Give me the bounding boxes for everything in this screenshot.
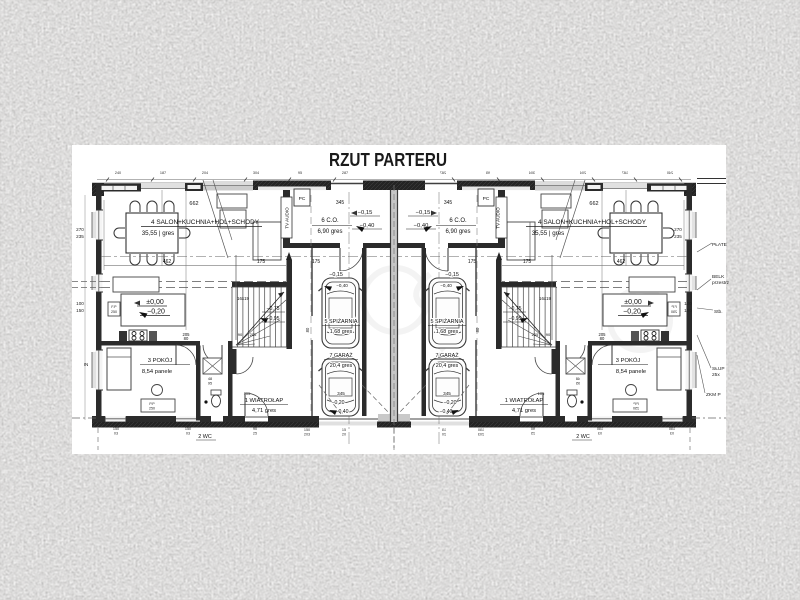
svg-text:−0,40: −0,40: [335, 409, 348, 415]
svg-text:205: 205: [532, 332, 539, 337]
svg-text:250: 250: [671, 310, 677, 314]
svg-text:−0,15: −0,15: [416, 210, 431, 216]
svg-text:03: 03: [114, 432, 118, 436]
svg-text:BELK: BELK: [712, 274, 725, 280]
svg-text:03: 03: [670, 432, 674, 436]
svg-text:16x19: 16x19: [237, 296, 250, 301]
svg-text:1,68 gres: 1,68 gres: [330, 329, 353, 335]
svg-text:IN: IN: [84, 362, 89, 367]
svg-text:35,55 | gres: 35,55 | gres: [532, 230, 565, 237]
svg-text:−0,40: −0,40: [336, 283, 348, 288]
svg-text:235: 235: [674, 234, 682, 239]
svg-text:462: 462: [163, 259, 172, 265]
svg-text:204: 204: [580, 171, 586, 175]
svg-text:100: 100: [684, 301, 692, 306]
svg-text:80: 80: [475, 327, 480, 332]
svg-text:175: 175: [523, 259, 532, 265]
svg-text:150: 150: [304, 428, 310, 432]
svg-text:−0,95: −0,95: [508, 316, 521, 322]
svg-text:P.P: P.P: [633, 402, 639, 406]
svg-text:25x: 25x: [712, 372, 720, 378]
svg-text:150: 150: [684, 308, 692, 313]
svg-text:7 GARAŻ: 7 GARAŻ: [435, 352, 459, 359]
svg-text:345: 345: [443, 391, 451, 396]
svg-text:4 SALON+KUCHNIA+HOL+SCHODY: 4 SALON+KUCHNIA+HOL+SCHODY: [151, 219, 259, 226]
svg-text:7 GARAŻ: 7 GARAŻ: [329, 352, 353, 359]
svg-text:205: 205: [250, 332, 257, 337]
svg-text:175: 175: [312, 259, 321, 265]
svg-text:235: 235: [76, 234, 84, 239]
svg-text:80: 80: [305, 327, 310, 332]
svg-text:03: 03: [598, 432, 602, 436]
svg-text:35,55 | gres: 35,55 | gres: [142, 230, 175, 237]
svg-text:95: 95: [576, 382, 580, 386]
svg-text:287: 287: [342, 171, 348, 175]
svg-text:662: 662: [589, 201, 598, 207]
svg-text:250: 250: [149, 407, 155, 411]
svg-text:8,54 panele: 8,54 panele: [142, 369, 172, 375]
svg-text:25: 25: [253, 432, 257, 436]
svg-text:6 C.O.: 6 C.O.: [449, 218, 467, 224]
svg-text:345: 345: [336, 200, 345, 206]
svg-text:150: 150: [185, 427, 191, 431]
svg-text:304: 304: [529, 171, 535, 175]
svg-text:2 WC: 2 WC: [576, 434, 590, 440]
svg-text:90: 90: [531, 427, 535, 431]
svg-text:462: 462: [617, 259, 626, 265]
svg-text:5 SPIŻARNIA: 5 SPIŻARNIA: [431, 318, 464, 325]
svg-text:240: 240: [667, 171, 673, 175]
svg-text:304: 304: [253, 171, 259, 175]
svg-text:203: 203: [304, 433, 310, 437]
svg-text:−0,75: −0,75: [266, 306, 279, 312]
svg-text:187: 187: [622, 171, 628, 175]
svg-text:6,90 gres: 6,90 gres: [317, 229, 342, 235]
svg-text:204: 204: [202, 171, 208, 175]
svg-text:270: 270: [674, 227, 682, 232]
svg-text:PŁATE: PŁATE: [712, 242, 727, 248]
svg-text:175: 175: [257, 259, 266, 265]
svg-text:−0,20: −0,20: [623, 309, 641, 316]
svg-text:20,4 gres: 20,4 gres: [436, 363, 459, 369]
svg-text:−0,40: −0,40: [439, 409, 452, 415]
svg-text:95: 95: [298, 171, 302, 175]
svg-text:PC: PC: [299, 196, 306, 202]
svg-text:4,71 gres: 4,71 gres: [512, 408, 536, 414]
svg-text:150: 150: [113, 427, 119, 431]
svg-text:±0,00: ±0,00: [146, 299, 164, 306]
svg-text:20: 20: [342, 433, 346, 437]
svg-text:Stb.: Stb.: [714, 309, 723, 315]
svg-text:150: 150: [478, 428, 484, 432]
svg-text:48: 48: [576, 377, 580, 381]
svg-text:P.P: P.P: [149, 402, 155, 406]
svg-text:20: 20: [442, 433, 446, 437]
svg-text:205: 205: [183, 332, 191, 337]
svg-text:03: 03: [186, 432, 190, 436]
svg-text:150: 150: [597, 427, 603, 431]
svg-text:2 WC: 2 WC: [198, 434, 212, 440]
svg-text:3 POKÓJ: 3 POKÓJ: [148, 357, 173, 364]
svg-text:90: 90: [238, 332, 243, 337]
svg-text:150: 150: [76, 308, 84, 313]
svg-text:6 C.O.: 6 C.O.: [321, 218, 339, 224]
svg-text:16x19: 16x19: [539, 296, 552, 301]
svg-text:15: 15: [442, 428, 446, 432]
svg-text:250: 250: [111, 310, 117, 314]
svg-text:przestrz: przestrz: [712, 280, 730, 286]
svg-text:205: 205: [599, 332, 607, 337]
svg-text:662: 662: [189, 201, 198, 207]
svg-text:345: 345: [444, 200, 453, 206]
svg-text:SŁUP: SŁUP: [712, 366, 725, 372]
svg-text:TV AUDIO: TV AUDIO: [285, 207, 290, 229]
svg-text:20,4 gres: 20,4 gres: [330, 363, 353, 369]
svg-text:F.P: F.P: [111, 305, 117, 309]
svg-text:4,71 gres: 4,71 gres: [252, 408, 276, 414]
svg-text:−0,95: −0,95: [266, 316, 279, 322]
svg-text:95: 95: [208, 382, 212, 386]
svg-text:15: 15: [342, 428, 346, 432]
svg-text:25: 25: [531, 432, 535, 436]
svg-text:4 SALON+KUCHNIA+HOL+SCHODY: 4 SALON+KUCHNIA+HOL+SCHODY: [538, 219, 646, 226]
svg-text:1,68 gres: 1,68 gres: [436, 329, 459, 335]
svg-text:100: 100: [76, 301, 84, 306]
svg-text:48: 48: [208, 377, 212, 381]
svg-text:203: 203: [478, 433, 484, 437]
svg-text:240: 240: [115, 171, 121, 175]
svg-text:3 POKÓJ: 3 POKÓJ: [616, 357, 641, 364]
svg-text:RZUT PARTERU: RZUT PARTERU: [329, 150, 447, 170]
svg-text:−0,20: −0,20: [147, 309, 165, 316]
svg-text:5 SPIŻARNIA: 5 SPIŻARNIA: [325, 318, 358, 325]
svg-text:−0,20: −0,20: [331, 400, 344, 406]
svg-text:90: 90: [546, 332, 551, 337]
svg-text:PC: PC: [483, 196, 490, 202]
svg-text:250: 250: [633, 407, 639, 411]
svg-text:90: 90: [253, 427, 257, 431]
svg-text:8,54 panele: 8,54 panele: [616, 369, 646, 375]
svg-text:−0,20: −0,20: [443, 400, 456, 406]
svg-text:−0,15: −0,15: [358, 210, 373, 216]
svg-text:−0,75: −0,75: [508, 306, 521, 312]
svg-text:−0,15: −0,15: [329, 272, 343, 278]
svg-text:150: 150: [669, 427, 675, 431]
svg-text:345: 345: [337, 391, 345, 396]
svg-text:187: 187: [160, 171, 166, 175]
svg-text:F.P: F.P: [671, 305, 677, 309]
svg-text:270: 270: [76, 227, 84, 232]
svg-text:95: 95: [486, 171, 490, 175]
svg-text:±0,00: ±0,00: [624, 299, 642, 306]
svg-text:ZKM P: ZKM P: [706, 392, 721, 398]
svg-text:−0,15: −0,15: [445, 272, 459, 278]
svg-text:TV AUDIO: TV AUDIO: [496, 207, 501, 229]
svg-text:175: 175: [468, 259, 477, 265]
svg-text:287: 287: [440, 171, 446, 175]
svg-text:−0,40: −0,40: [440, 283, 452, 288]
svg-text:6,90 gres: 6,90 gres: [445, 229, 470, 235]
